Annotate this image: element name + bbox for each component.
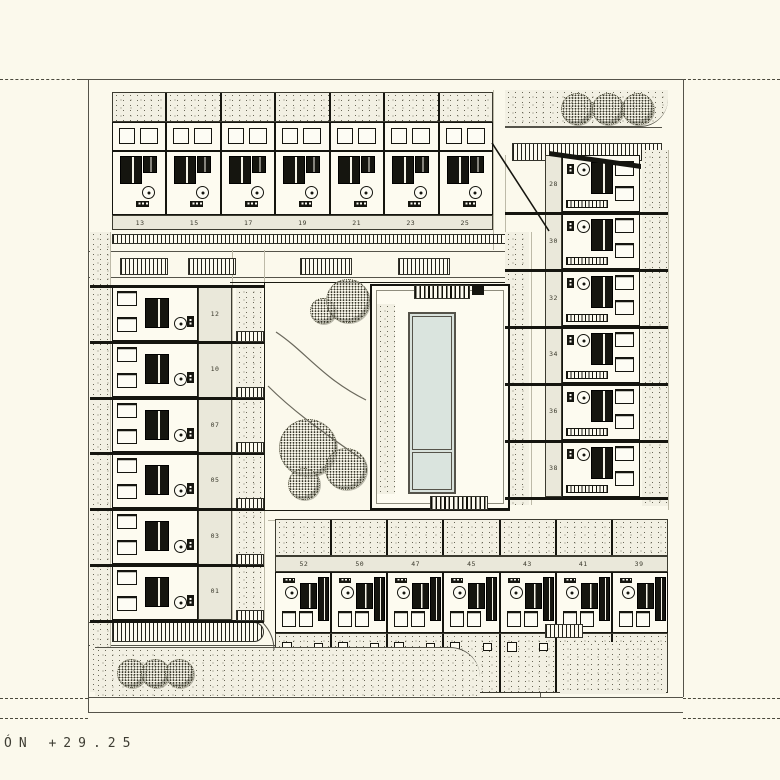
gr — [339, 578, 351, 583]
gr — [187, 483, 194, 494]
unit-number-label: 25 — [438, 216, 492, 229]
gr — [187, 372, 194, 383]
cc — [360, 186, 373, 199]
hatchv — [545, 624, 583, 638]
wl — [276, 150, 328, 152]
chair — [507, 642, 517, 652]
gr — [395, 578, 407, 583]
dk — [356, 583, 373, 609]
patio-cell — [274, 93, 328, 121]
dk — [197, 156, 211, 173]
unit-number-label: 12 — [199, 286, 231, 342]
dk — [361, 156, 375, 173]
dk — [174, 156, 196, 184]
gr — [567, 449, 574, 459]
cc — [469, 186, 482, 199]
dot — [582, 339, 585, 342]
rm — [173, 128, 189, 144]
bed — [299, 611, 313, 627]
unit-number-label: 34 — [546, 326, 561, 383]
plan-right-edge — [683, 79, 684, 697]
courtyard-top-wall — [230, 282, 510, 283]
unit-cell-21 — [329, 123, 383, 214]
tree-icon — [325, 448, 367, 490]
dk — [591, 390, 613, 422]
gr — [245, 201, 258, 207]
rm — [140, 128, 158, 144]
unit-number-label: 17 — [221, 216, 275, 229]
cc — [174, 596, 187, 609]
hatchv — [236, 554, 264, 565]
bottom-left-stair-strip — [112, 622, 264, 642]
bottom-boundary-line-1 — [88, 697, 683, 698]
dot — [179, 378, 182, 381]
gr — [190, 201, 203, 207]
unit-number-label: 07 — [199, 397, 231, 453]
unit-cell-13 — [113, 123, 165, 214]
dot — [571, 591, 574, 594]
patio-cell — [383, 93, 437, 121]
dk — [120, 156, 142, 184]
bed — [117, 540, 137, 555]
patio-cell — [220, 93, 274, 121]
dot — [310, 191, 313, 194]
dot — [256, 191, 259, 194]
gr — [567, 278, 574, 288]
bed — [117, 596, 137, 611]
unit-cell-07 — [113, 396, 197, 452]
unit-cell-39 — [611, 573, 667, 632]
dot — [515, 591, 518, 594]
party-wall — [505, 326, 668, 329]
unit-cell-30 — [563, 211, 639, 268]
top-boundary-dash-right — [683, 79, 780, 80]
patio-cell — [555, 520, 611, 555]
lad — [566, 371, 608, 379]
unit-cell-10 — [113, 340, 197, 396]
dk — [447, 156, 469, 184]
unit-number-label: 03 — [199, 508, 231, 564]
gr — [283, 578, 295, 583]
bottom-row-patios-top — [275, 519, 668, 556]
tree-icon — [288, 468, 320, 500]
cc — [174, 317, 187, 330]
cc — [577, 220, 590, 233]
courtyard-left-wall — [264, 283, 265, 510]
bed — [615, 332, 634, 347]
dk — [145, 298, 169, 328]
dk — [145, 521, 169, 551]
cc — [453, 586, 466, 599]
dk — [145, 465, 169, 495]
bed — [355, 611, 369, 627]
bed — [282, 611, 296, 627]
cc — [577, 391, 590, 404]
dk — [229, 156, 251, 184]
dk — [318, 577, 329, 621]
gr — [564, 578, 576, 583]
dot — [419, 191, 422, 194]
dk — [591, 219, 613, 251]
wl — [222, 150, 274, 152]
hatchv — [236, 498, 264, 509]
hatchv — [236, 610, 264, 621]
dk — [655, 577, 666, 621]
blk — [472, 285, 484, 295]
unit-number-label: 38 — [546, 439, 561, 496]
dk — [599, 577, 610, 621]
unit-number-label: 10 — [199, 342, 231, 398]
dk — [543, 577, 554, 621]
gr — [299, 201, 312, 207]
bed — [615, 357, 634, 372]
swimming-pool — [408, 312, 456, 494]
cc — [142, 186, 155, 199]
plan-left-edge — [88, 79, 89, 712]
top-row-label-strip: 13151719212325 — [112, 215, 493, 230]
gr — [187, 595, 194, 606]
unit-number-label: 32 — [546, 269, 561, 326]
level-caption: ÓN +29.25 — [4, 736, 137, 751]
party-wall — [505, 497, 668, 500]
patio-cell — [386, 520, 442, 555]
unit-cell-47 — [386, 573, 442, 632]
party-wall — [505, 212, 668, 215]
party-wall — [505, 269, 668, 272]
bed — [507, 611, 521, 627]
unit-cell-23 — [383, 123, 437, 214]
wl — [385, 150, 437, 152]
gr — [187, 316, 194, 327]
unit-number-label: 41 — [555, 557, 611, 571]
gr — [408, 201, 421, 207]
hl — [88, 277, 508, 278]
unit-number-label: 43 — [499, 557, 555, 571]
unit-number-label: 01 — [199, 564, 231, 620]
dk — [470, 156, 484, 173]
bottom-dash-right-2 — [683, 718, 780, 719]
unit-number-label: 45 — [444, 557, 500, 571]
rm — [337, 128, 353, 144]
tree-icon — [592, 93, 624, 125]
dk — [145, 354, 169, 384]
unit-cell-45 — [442, 573, 498, 632]
hatchv — [398, 258, 450, 275]
tree-icon — [165, 659, 194, 688]
dot — [201, 191, 204, 194]
dk — [486, 577, 497, 621]
cc — [174, 484, 187, 497]
rm — [446, 128, 462, 144]
bed — [117, 291, 137, 306]
bed — [615, 275, 634, 290]
patio-cell — [442, 520, 498, 555]
unit-cell-34 — [563, 325, 639, 382]
tree-icon — [326, 279, 370, 323]
patio-cell — [165, 93, 219, 121]
cc — [174, 540, 187, 553]
unit-number-label: 13 — [113, 216, 167, 229]
unit-cell-01 — [113, 563, 197, 619]
dk — [392, 156, 414, 184]
dk — [252, 156, 266, 173]
bed — [450, 611, 464, 627]
bottom-dash-right-1 — [683, 698, 780, 699]
cc — [566, 586, 579, 599]
bed — [117, 403, 137, 418]
gr — [136, 201, 149, 207]
patio-cell — [330, 520, 386, 555]
cc — [251, 186, 264, 199]
cc — [196, 186, 209, 199]
bed — [117, 514, 137, 529]
patio-cell — [113, 93, 165, 121]
gr — [567, 164, 574, 174]
unit-number-label: 30 — [546, 213, 561, 270]
dot — [402, 591, 405, 594]
wl — [167, 150, 219, 152]
rm — [391, 128, 407, 144]
gr — [567, 335, 574, 345]
dot — [179, 434, 182, 437]
unit-cell-52 — [276, 573, 330, 632]
bed — [467, 611, 481, 627]
dot — [290, 591, 293, 594]
dot — [365, 191, 368, 194]
unit-cell-32 — [563, 268, 639, 325]
dot — [179, 545, 182, 548]
dot — [582, 453, 585, 456]
party-wall — [505, 440, 668, 443]
bed — [117, 429, 137, 444]
gr — [508, 578, 520, 583]
patio-cell — [276, 520, 330, 555]
dk — [468, 583, 485, 609]
unit-number-label: 28 — [546, 156, 561, 213]
bed — [615, 389, 634, 404]
bed — [615, 186, 634, 201]
unit-cell-03 — [113, 507, 197, 563]
dot — [627, 591, 630, 594]
dk — [591, 276, 613, 308]
patio-cell — [499, 634, 555, 692]
bed — [394, 611, 408, 627]
bed — [117, 570, 137, 585]
gr — [451, 578, 463, 583]
unit-cell-05 — [113, 451, 197, 507]
bed — [117, 484, 137, 499]
bed — [117, 458, 137, 473]
cc — [577, 334, 590, 347]
bottom-row-units — [275, 572, 668, 633]
bed — [615, 218, 634, 233]
bed — [524, 611, 538, 627]
chair2 — [539, 643, 548, 651]
patio-cell — [499, 520, 555, 555]
rm — [358, 128, 376, 144]
unit-cell-17 — [220, 123, 274, 214]
patio-cell — [611, 520, 667, 555]
hl — [505, 127, 662, 128]
bed — [615, 243, 634, 258]
bed — [615, 161, 634, 176]
wl — [113, 150, 165, 152]
unit-cell-15 — [165, 123, 219, 214]
cc — [285, 586, 298, 599]
unit-cell-36 — [563, 382, 639, 439]
pool-steps-top — [414, 285, 470, 299]
cc — [341, 586, 354, 599]
top-row-units — [112, 122, 493, 215]
wl — [331, 150, 383, 152]
bed — [338, 611, 352, 627]
site-plan-canvas: 13151719212325 121007050301 283032343638… — [0, 0, 780, 780]
lane2 — [412, 452, 452, 490]
unit-number-label: 47 — [388, 557, 444, 571]
unit-number-label: 05 — [199, 453, 231, 509]
gr — [567, 392, 574, 402]
unit-number-label: 19 — [275, 216, 329, 229]
dot — [582, 168, 585, 171]
dk — [283, 156, 305, 184]
dot — [179, 322, 182, 325]
vl — [493, 90, 494, 250]
[object — [276, 332, 366, 400]
bed — [117, 373, 137, 388]
cc — [577, 448, 590, 461]
dot — [458, 591, 461, 594]
cc — [174, 429, 187, 442]
dk — [591, 162, 613, 194]
dot — [582, 282, 585, 285]
unit-number-label: 39 — [611, 557, 667, 571]
rm — [282, 128, 298, 144]
dk — [637, 583, 654, 609]
hatchv — [236, 331, 264, 342]
unit-number-label: 21 — [330, 216, 384, 229]
unit-number-label: 50 — [332, 557, 388, 571]
dot — [582, 396, 585, 399]
dk — [412, 583, 429, 609]
left-garden-strip — [90, 232, 110, 692]
cc — [622, 586, 635, 599]
bed — [117, 317, 137, 332]
bottom-dash-left-1 — [0, 698, 88, 699]
hatchv — [236, 387, 264, 398]
gr — [463, 201, 476, 207]
dk — [338, 156, 360, 184]
gr — [187, 428, 194, 439]
dk — [430, 577, 441, 621]
dk — [145, 410, 169, 440]
dk — [415, 156, 429, 173]
unit-cell-38 — [563, 439, 639, 496]
rm — [228, 128, 244, 144]
dk — [525, 583, 542, 609]
bed — [411, 611, 425, 627]
bed — [117, 347, 137, 362]
rm — [303, 128, 321, 144]
stipple — [560, 642, 666, 694]
pool-steps-bottom — [430, 496, 488, 510]
cc — [510, 586, 523, 599]
top-row-patios — [112, 92, 493, 122]
party-wall — [90, 285, 264, 288]
cc — [174, 373, 187, 386]
unit-cell-19 — [274, 123, 328, 214]
tree-icon — [622, 93, 654, 125]
unit-cell-12 — [113, 286, 197, 340]
top-boundary-dash-left — [0, 79, 80, 80]
lane — [412, 316, 452, 450]
vl — [110, 232, 111, 692]
bed — [615, 446, 634, 461]
patio-cell — [329, 93, 383, 121]
dk — [374, 577, 385, 621]
lad — [566, 485, 608, 493]
unit-number-label: 52 — [276, 557, 332, 571]
top-boundary-line — [78, 79, 683, 80]
dk — [143, 156, 157, 173]
gr — [187, 539, 194, 550]
bed — [615, 300, 634, 315]
rm — [119, 128, 135, 144]
cc — [414, 186, 427, 199]
stipple — [377, 304, 395, 494]
lad — [566, 314, 608, 322]
hl — [88, 251, 508, 252]
hatchv — [236, 442, 264, 453]
lad — [566, 428, 608, 436]
dk — [300, 583, 317, 609]
hatchv — [188, 258, 236, 275]
bed — [615, 471, 634, 486]
lad — [566, 257, 608, 265]
dk — [306, 156, 320, 173]
bed — [615, 414, 634, 429]
courtyard-bottom-wall — [230, 510, 510, 511]
bed — [619, 611, 633, 627]
lad — [566, 200, 608, 208]
unit-number-label: 15 — [167, 216, 221, 229]
dk — [581, 583, 598, 609]
cc — [397, 586, 410, 599]
unit-cell-25 — [438, 123, 492, 214]
wl — [440, 150, 492, 152]
dk — [145, 577, 169, 607]
cc — [577, 277, 590, 290]
rm — [249, 128, 267, 144]
dot — [179, 489, 182, 492]
chair2 — [483, 643, 492, 651]
bed — [636, 611, 650, 627]
rm — [467, 128, 485, 144]
hatchv — [300, 258, 352, 275]
rm — [194, 128, 212, 144]
rm — [412, 128, 430, 144]
unit-cell-50 — [330, 573, 386, 632]
dot — [582, 225, 585, 228]
vl — [668, 150, 669, 510]
unit-number-label: 36 — [546, 383, 561, 440]
party-wall — [505, 383, 668, 386]
bottom-dash-left-2 — [0, 718, 88, 719]
dot — [147, 191, 150, 194]
cc — [577, 163, 590, 176]
vl — [531, 232, 532, 505]
top-corridor-hatch — [112, 234, 509, 244]
tree-icon — [561, 93, 593, 125]
